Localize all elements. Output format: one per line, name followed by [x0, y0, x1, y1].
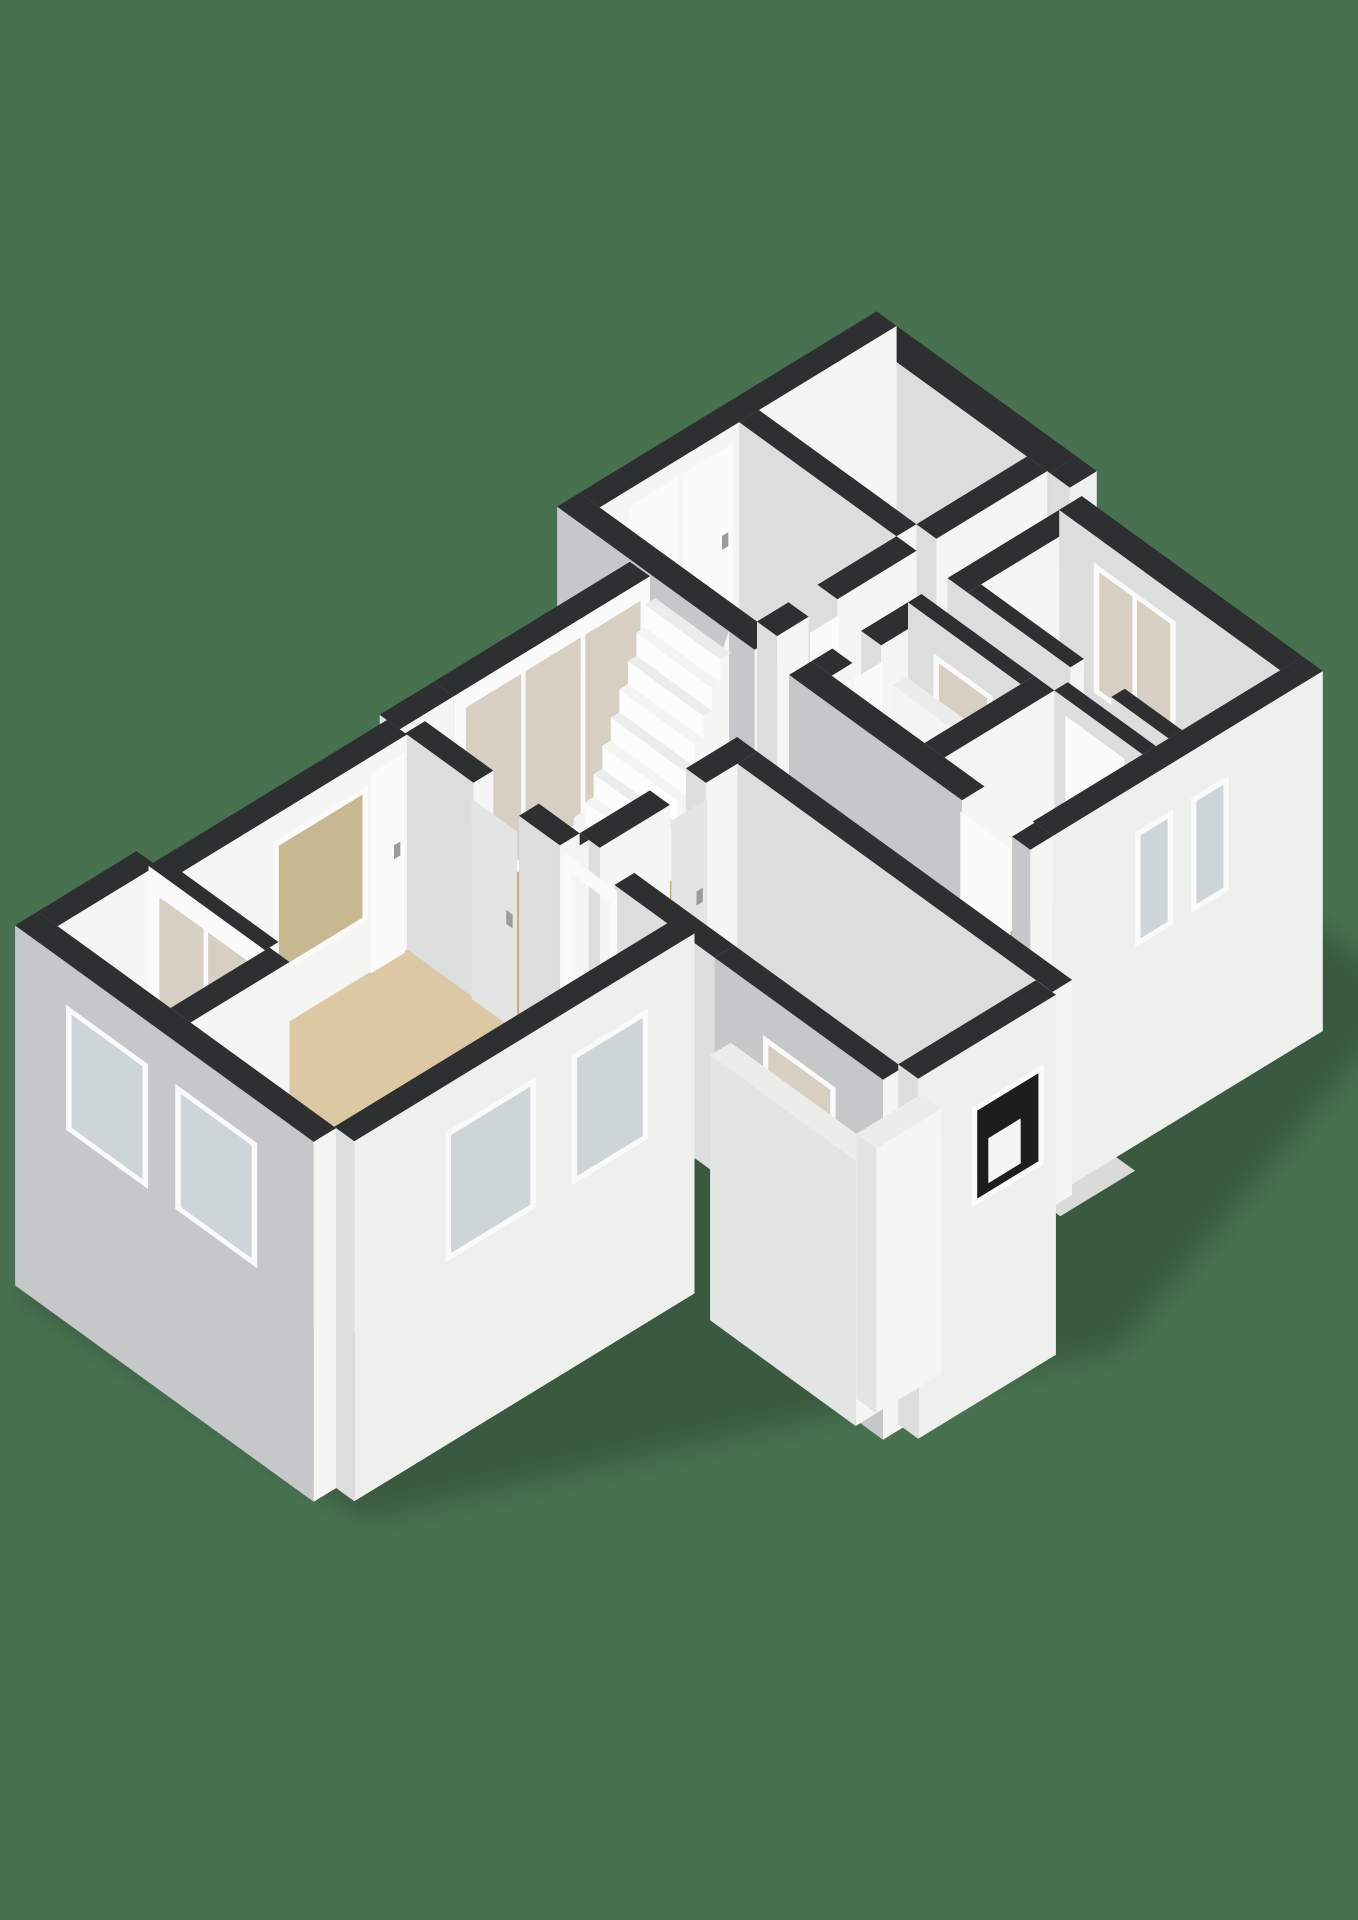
west-facade-face [314, 1128, 337, 1502]
floorplan-3d-stage [0, 0, 1358, 1920]
living-back-door-leaf [371, 753, 405, 974]
garden-wall-2-face [876, 1109, 941, 1414]
se-facade-window-2-glass [1196, 785, 1223, 905]
living-se-facade-side [334, 1127, 354, 1502]
garden-wall-2-side [856, 1134, 876, 1414]
floorplan-3d-render [0, 0, 1358, 1920]
se-facade-window-1-glass [1141, 819, 1168, 939]
